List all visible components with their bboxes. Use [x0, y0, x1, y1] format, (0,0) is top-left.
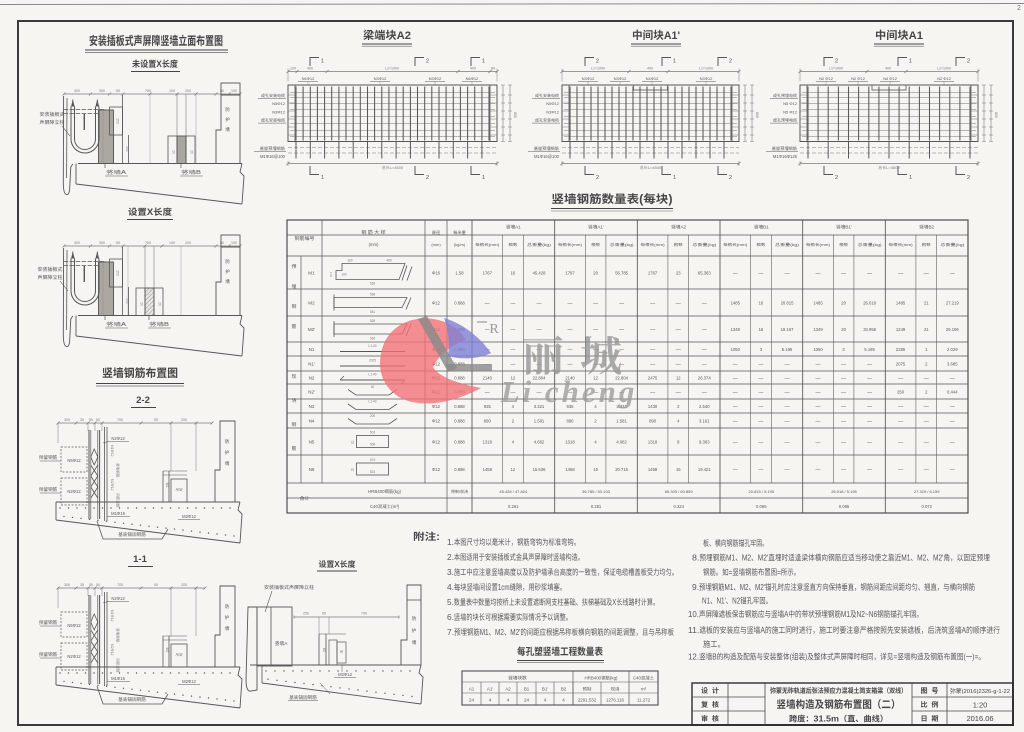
svg-text:N1: N1: [309, 347, 315, 352]
svg-text:—: —: [924, 270, 929, 276]
svg-text:—: —: [676, 361, 681, 367]
svg-text:—: —: [867, 361, 872, 367]
svg-text:1050: 1050: [731, 347, 741, 352]
svg-text:N3Φ12: N3Φ12: [374, 76, 388, 81]
svg-text:2: 2: [729, 59, 732, 65]
svg-text:700: 700: [117, 583, 123, 587]
svg-text:21: 21: [924, 327, 929, 332]
svg-text:0.888: 0.888: [454, 300, 465, 305]
svg-text:A2: A2: [680, 225, 686, 230]
svg-text:—: —: [816, 270, 821, 276]
svg-text:(kg): (kg): [625, 243, 635, 247]
svg-text:11.: 11.: [688, 626, 699, 635]
svg-text:M1Φ16: M1Φ16: [111, 511, 125, 516]
svg-text:(kg/m): (kg/m): [454, 242, 466, 247]
svg-text:45.428 / 47.824: 45.428 / 47.824: [499, 489, 528, 494]
svg-text:—: —: [950, 439, 955, 445]
svg-text:20.815: 20.815: [781, 300, 794, 305]
svg-text:1485: 1485: [731, 300, 741, 305]
svg-text:—: —: [676, 389, 681, 395]
svg-text:A2: A2: [505, 687, 511, 692]
svg-text:N2Φ12: N2Φ12: [67, 489, 81, 494]
svg-text:L1=1000: L1=1000: [829, 67, 843, 71]
svg-text:L1=1000: L1=1000: [385, 67, 399, 71]
svg-text:16: 16: [759, 300, 764, 305]
svg-text:2-2: 2-2: [136, 395, 150, 406]
svg-text:M1: M1: [480, 628, 489, 637]
svg-text:N2Φ12: N2Φ12: [110, 479, 114, 490]
svg-text:252: 252: [125, 146, 129, 152]
svg-text:M2: M2: [165, 648, 169, 653]
svg-text:4: 4: [489, 698, 492, 703]
svg-text:2.029: 2.029: [947, 347, 958, 352]
svg-text:20: 20: [593, 270, 598, 275]
svg-text:—: —: [898, 439, 903, 445]
svg-text:M2Φ12: M2Φ12: [182, 514, 196, 519]
svg-text:7.: 7.: [447, 628, 454, 637]
svg-text:20: 20: [158, 302, 162, 306]
svg-text:9.: 9.: [692, 583, 699, 592]
svg-text:0.888: 0.888: [454, 404, 465, 409]
svg-text:50: 50: [154, 418, 158, 422]
svg-text:0.888: 0.888: [454, 418, 465, 423]
svg-text:L1=1000: L1=1000: [937, 67, 951, 71]
svg-text:N5 Φ12: N5 Φ12: [783, 101, 798, 106]
svg-text:—: —: [758, 467, 763, 473]
svg-text:400: 400: [470, 67, 476, 71]
svg-text:56.785 / 53.103: 56.785 / 53.103: [582, 489, 611, 494]
svg-text:(: (: [639, 194, 643, 206]
svg-text:N2': N2': [308, 389, 315, 394]
svg-text:—: —: [867, 404, 872, 410]
svg-text:—: —: [841, 467, 846, 473]
svg-text:—: —: [650, 300, 655, 306]
svg-text:—: —: [924, 439, 929, 445]
svg-text:N1: N1: [702, 597, 710, 606]
svg-text:—: —: [816, 467, 821, 473]
svg-text:B: B: [196, 170, 202, 176]
svg-text:—: —: [841, 404, 846, 410]
svg-text:2: 2: [835, 59, 838, 65]
svg-text:2025: 2025: [369, 359, 376, 363]
svg-text:(kg): (kg): [956, 243, 966, 247]
svg-text:100: 100: [231, 89, 237, 93]
svg-text:(mm): (mm): [369, 242, 379, 247]
svg-text:6.: 6.: [447, 613, 454, 622]
svg-text:—: —: [841, 375, 846, 381]
svg-text:100: 100: [169, 89, 175, 93]
svg-text:—: —: [485, 389, 490, 395]
svg-text:N5Φ12: N5Φ12: [67, 623, 81, 628]
svg-text:1767: 1767: [648, 270, 658, 275]
svg-text:50: 50: [154, 583, 158, 587]
svg-text:—: —: [785, 418, 790, 424]
svg-text:50: 50: [322, 612, 326, 616]
svg-text:(mm): (mm): [819, 243, 830, 247]
svg-text:Li cheng: Li cheng: [500, 374, 638, 409]
svg-text::: :: [436, 532, 440, 543]
svg-text:20: 20: [841, 300, 846, 305]
svg-text:(: (: [790, 653, 792, 662]
svg-text:—: —: [702, 300, 707, 306]
svg-text:M2': M2': [755, 583, 765, 592]
svg-text:50: 50: [96, 583, 100, 587]
svg-text:65.303 / 60.859: 65.303 / 60.859: [665, 489, 694, 494]
svg-text:—: —: [650, 347, 655, 353]
svg-text:(kg): (kg): [708, 243, 718, 247]
svg-text:(2016)2326-g-1-22: (2016)2326-g-1-22: [962, 689, 1010, 695]
svg-text:M2: M2: [740, 583, 749, 592]
svg-text:N1': N1': [716, 597, 726, 606]
svg-text:—: —: [733, 404, 738, 410]
svg-text:(kg): (kg): [790, 243, 800, 247]
svg-text:1318: 1318: [648, 439, 658, 444]
svg-text:200: 200: [181, 418, 187, 422]
svg-text:M2: M2: [742, 554, 752, 563]
svg-text:): ): [805, 653, 807, 662]
svg-text:(mm): (mm): [571, 243, 582, 247]
svg-text:L1=1000: L1=1000: [699, 67, 713, 71]
svg-text:X: X: [147, 207, 153, 217]
svg-text:15.536: 15.536: [533, 467, 546, 472]
svg-text:4.: 4.: [447, 583, 454, 592]
svg-text:M2': M2': [933, 554, 944, 563]
svg-text:Φ16: Φ16: [432, 270, 441, 275]
svg-text:0.281: 0.281: [591, 504, 602, 509]
svg-text:): ): [668, 194, 672, 206]
svg-text:56.785: 56.785: [615, 270, 628, 275]
svg-text:—: —: [593, 300, 598, 306]
svg-text:(kg): (kg): [610, 676, 618, 681]
svg-text:523: 523: [370, 470, 376, 474]
svg-text:L1=1000: L1=1000: [591, 67, 605, 71]
svg-text:Φ12: Φ12: [432, 439, 441, 444]
svg-text:40: 40: [371, 385, 375, 389]
svg-text:—: —: [867, 375, 872, 381]
svg-text:250: 250: [897, 389, 905, 394]
svg-text:300: 300: [74, 89, 80, 93]
svg-text:—: —: [816, 375, 821, 381]
svg-text:1: 1: [909, 59, 912, 65]
svg-text:1430: 1430: [648, 404, 658, 409]
svg-text:—: —: [650, 389, 655, 395]
svg-text:N2 Φ12: N2 Φ12: [937, 76, 952, 81]
svg-text:1: 1: [482, 175, 485, 181]
svg-text:0.444: 0.444: [947, 389, 958, 394]
svg-text:N2Φ12: N2Φ12: [111, 436, 125, 441]
svg-text:N4: N4: [309, 418, 315, 423]
svg-text:N2Φ12: N2Φ12: [111, 596, 125, 601]
svg-text:21: 21: [924, 300, 929, 305]
svg-text:50: 50: [96, 418, 100, 422]
svg-text:2291.532: 2291.532: [578, 698, 597, 703]
svg-text:—: —: [867, 389, 872, 395]
svg-text:N3Φ12: N3Φ12: [546, 109, 560, 114]
svg-text:—: —: [619, 347, 624, 353]
svg-text:19.421: 19.421: [698, 467, 711, 472]
svg-text:526: 526: [370, 337, 376, 341]
svg-text:300: 300: [74, 241, 80, 245]
svg-text:B1: B1: [524, 687, 530, 692]
svg-text:N6: N6: [309, 467, 315, 472]
svg-text:—: —: [950, 418, 955, 424]
svg-text:23: 23: [676, 270, 681, 275]
svg-text:19.167: 19.167: [781, 327, 794, 332]
svg-text:26.374: 26.374: [698, 375, 711, 380]
svg-text:M2: M2: [308, 300, 315, 305]
svg-text:1349: 1349: [731, 327, 741, 332]
svg-text:—: —: [898, 375, 903, 381]
svg-text:—: —: [785, 361, 790, 367]
svg-text:0.888: 0.888: [454, 439, 465, 444]
svg-text:—: —: [785, 375, 790, 381]
svg-text:B1: B1: [763, 225, 769, 230]
svg-text:20: 20: [190, 150, 194, 154]
svg-text:4: 4: [507, 698, 510, 703]
svg-text:528: 528: [370, 319, 376, 323]
svg-text:—: —: [568, 347, 573, 353]
svg-text:A: A: [784, 610, 789, 619]
svg-text:—: —: [650, 327, 655, 333]
svg-text:0.888: 0.888: [454, 375, 465, 380]
svg-text:—: —: [733, 439, 738, 445]
svg-text:N5 Φ12: N5 Φ12: [783, 109, 798, 114]
svg-text:L=4500: L=4500: [390, 165, 404, 170]
svg-text:M2Φ12: M2Φ12: [338, 672, 352, 677]
svg-text:—: —: [867, 439, 872, 445]
svg-text:200: 200: [181, 583, 187, 587]
svg-text:1:20: 1:20: [973, 701, 988, 710]
svg-text:X: X: [156, 59, 162, 69]
svg-text:HRB400: HRB400: [585, 676, 602, 681]
svg-text:15: 15: [676, 467, 681, 472]
svg-text:2016.06: 2016.06: [966, 714, 993, 723]
svg-text:35: 35: [80, 418, 84, 422]
svg-text:C40: C40: [370, 504, 379, 509]
svg-text:—: —: [785, 467, 790, 473]
svg-text:200: 200: [185, 89, 191, 93]
svg-text:250: 250: [116, 118, 120, 124]
svg-text:—: —: [510, 347, 515, 353]
svg-text:16: 16: [759, 327, 764, 332]
svg-text:M2: M2: [495, 628, 504, 637]
svg-text:2285: 2285: [896, 347, 906, 352]
svg-text:1458: 1458: [483, 467, 493, 472]
svg-text:10.: 10.: [688, 610, 699, 619]
svg-text:170: 170: [329, 272, 333, 277]
svg-text:—: —: [619, 327, 624, 333]
svg-text:Φ12: Φ12: [432, 404, 441, 409]
svg-text:M1Φ16: M1Φ16: [111, 676, 125, 681]
svg-text:890: 890: [649, 418, 657, 423]
svg-text:20: 20: [841, 327, 846, 332]
svg-text:1.58: 1.58: [455, 270, 464, 275]
svg-text:M1Φ16@100: M1Φ16@100: [260, 154, 286, 159]
svg-text:—: —: [702, 389, 707, 395]
svg-text:1: 1: [673, 59, 676, 65]
svg-text:L1-40: L1-40: [368, 373, 376, 377]
svg-text:508: 508: [370, 443, 376, 447]
svg-text:L=4500: L=4500: [648, 165, 662, 170]
svg-text:N3Φ12: N3Φ12: [429, 76, 443, 81]
svg-text:4: 4: [562, 698, 565, 703]
svg-text:2475: 2475: [648, 375, 658, 380]
svg-text:=: =: [777, 568, 781, 577]
svg-text:—: —: [924, 467, 929, 473]
svg-text:N1Φ12: N1Φ12: [110, 610, 114, 621]
svg-text:M1: M1: [841, 610, 850, 619]
svg-text:—: —: [898, 270, 903, 276]
svg-text:B2: B2: [928, 225, 934, 230]
svg-text:(mm): (mm): [902, 243, 913, 247]
svg-text:—: —: [568, 361, 573, 367]
svg-text:890: 890: [484, 418, 492, 423]
svg-text:M1: M1: [901, 554, 911, 563]
svg-text:—: —: [785, 389, 790, 395]
svg-text:1797: 1797: [565, 270, 575, 275]
svg-text:2: 2: [596, 59, 599, 65]
svg-text:200: 200: [370, 414, 376, 418]
svg-text:12: 12: [676, 375, 681, 380]
svg-text:1: 1: [321, 175, 324, 181]
svg-text:2: 2: [426, 59, 429, 65]
svg-text:2: 2: [967, 175, 970, 181]
svg-text:—: —: [758, 270, 763, 276]
svg-text:1458: 1458: [648, 467, 658, 472]
svg-text:M1: M1: [726, 554, 736, 563]
svg-text:—: —: [758, 375, 763, 381]
svg-text:—: —: [898, 404, 903, 410]
svg-text:—: —: [898, 467, 903, 473]
svg-text:1-1: 1-1: [133, 554, 147, 565]
svg-text:0.281: 0.281: [508, 504, 519, 509]
svg-text:(kg): (kg): [393, 489, 401, 494]
svg-text:—: —: [733, 467, 738, 473]
svg-text:B1': B1': [542, 687, 548, 692]
svg-text:B: B: [164, 322, 170, 328]
svg-text:A1': A1': [664, 30, 680, 42]
svg-text:R: R: [489, 322, 499, 337]
svg-text:—: —: [816, 404, 821, 410]
svg-text:B2: B2: [561, 687, 567, 692]
svg-text:—: —: [510, 327, 515, 333]
svg-text:—: —: [568, 300, 573, 306]
svg-text:—: —: [676, 327, 681, 333]
svg-text:—: —: [510, 361, 515, 367]
svg-text:N2Φ12: N2Φ12: [110, 644, 114, 655]
svg-text:—: —: [841, 361, 846, 367]
svg-text:100: 100: [341, 273, 347, 277]
svg-text:—: —: [758, 361, 763, 367]
svg-text:800: 800: [513, 112, 517, 118]
svg-text:890: 890: [567, 418, 575, 423]
svg-text:598: 598: [370, 293, 376, 297]
svg-text:—: —: [785, 270, 790, 276]
svg-text:100: 100: [290, 67, 296, 71]
svg-text:—: —: [816, 418, 821, 424]
svg-text:0.085: 0.085: [839, 504, 850, 509]
svg-text:M2': M2': [758, 554, 769, 563]
svg-text:N6Φ12: N6Φ12: [302, 76, 316, 81]
svg-text:M1: M1: [725, 583, 734, 592]
svg-text:400: 400: [885, 67, 891, 71]
svg-text:(m³): (m³): [391, 504, 400, 509]
svg-text:700: 700: [361, 612, 367, 616]
svg-text:—: —: [568, 327, 573, 333]
svg-text:0.324: 0.324: [673, 504, 684, 509]
svg-text:A: A: [962, 626, 967, 635]
svg-text:N4 Φ12: N4 Φ12: [883, 76, 898, 81]
svg-text:—: —: [733, 418, 738, 424]
svg-text:A1': A1': [597, 225, 604, 230]
svg-text:2: 2: [729, 175, 732, 181]
svg-text:L1-40: L1-40: [368, 400, 376, 404]
svg-text:20: 20: [140, 302, 144, 306]
svg-text:300: 300: [64, 583, 70, 587]
svg-text:N6Φ12: N6Φ12: [466, 76, 480, 81]
svg-text:—: —: [537, 300, 542, 306]
svg-text:B1': B1': [845, 225, 852, 230]
svg-text:—: —: [619, 300, 624, 306]
svg-text:—: —: [950, 404, 955, 410]
svg-text:N5: N5: [309, 439, 315, 444]
svg-text:—: —: [702, 327, 707, 333]
svg-text:M2: M2: [322, 648, 326, 653]
svg-text:N5Φ12: N5Φ12: [67, 458, 81, 463]
svg-text:=: =: [893, 653, 897, 662]
svg-text:—: —: [650, 361, 655, 367]
svg-text:1349: 1349: [813, 327, 823, 332]
svg-text:N3Φ12: N3Φ12: [700, 76, 714, 81]
svg-text:2: 2: [596, 175, 599, 181]
svg-text:1249: 1249: [896, 327, 906, 332]
svg-text:1.581: 1.581: [616, 418, 627, 423]
svg-text:31.5m: 31.5m: [814, 715, 839, 724]
svg-text:—: —: [510, 300, 515, 306]
svg-text:—: —: [733, 375, 738, 381]
svg-text:1458: 1458: [565, 467, 575, 472]
svg-text:35: 35: [80, 583, 84, 587]
svg-text:A1: A1: [909, 30, 923, 42]
svg-text:N2 Φ12: N2 Φ12: [819, 76, 834, 81]
svg-text:HRB400: HRB400: [368, 489, 385, 494]
svg-text:20.715: 20.715: [615, 467, 628, 472]
svg-text:160: 160: [347, 259, 353, 263]
svg-text:Φ12: Φ12: [432, 300, 441, 305]
svg-text:N2: N2: [309, 375, 315, 380]
svg-text:3.: 3.: [447, 568, 454, 577]
svg-text:3.161: 3.161: [699, 418, 710, 423]
svg-text:C40: C40: [633, 676, 642, 681]
svg-text:1485: 1485: [896, 300, 906, 305]
svg-text:(mm): (mm): [431, 242, 441, 247]
svg-text:—: —: [867, 467, 872, 473]
svg-text:—: —: [841, 270, 846, 276]
svg-text:27.319 / 6.159: 27.319 / 6.159: [914, 489, 940, 494]
svg-text:(: (: [963, 653, 965, 662]
svg-text:—: —: [676, 300, 681, 306]
svg-text:800: 800: [755, 112, 759, 118]
svg-text:16: 16: [593, 467, 598, 472]
svg-text:X: X: [334, 560, 340, 569]
svg-text:700: 700: [117, 418, 123, 422]
svg-text:4.682: 4.682: [616, 439, 627, 444]
svg-text:A: A: [121, 170, 127, 176]
svg-text:1: 1: [673, 175, 676, 181]
svg-text:0.065: 0.065: [756, 504, 767, 509]
svg-text:12.: 12.: [688, 653, 699, 662]
svg-text:80: 80: [491, 67, 495, 71]
